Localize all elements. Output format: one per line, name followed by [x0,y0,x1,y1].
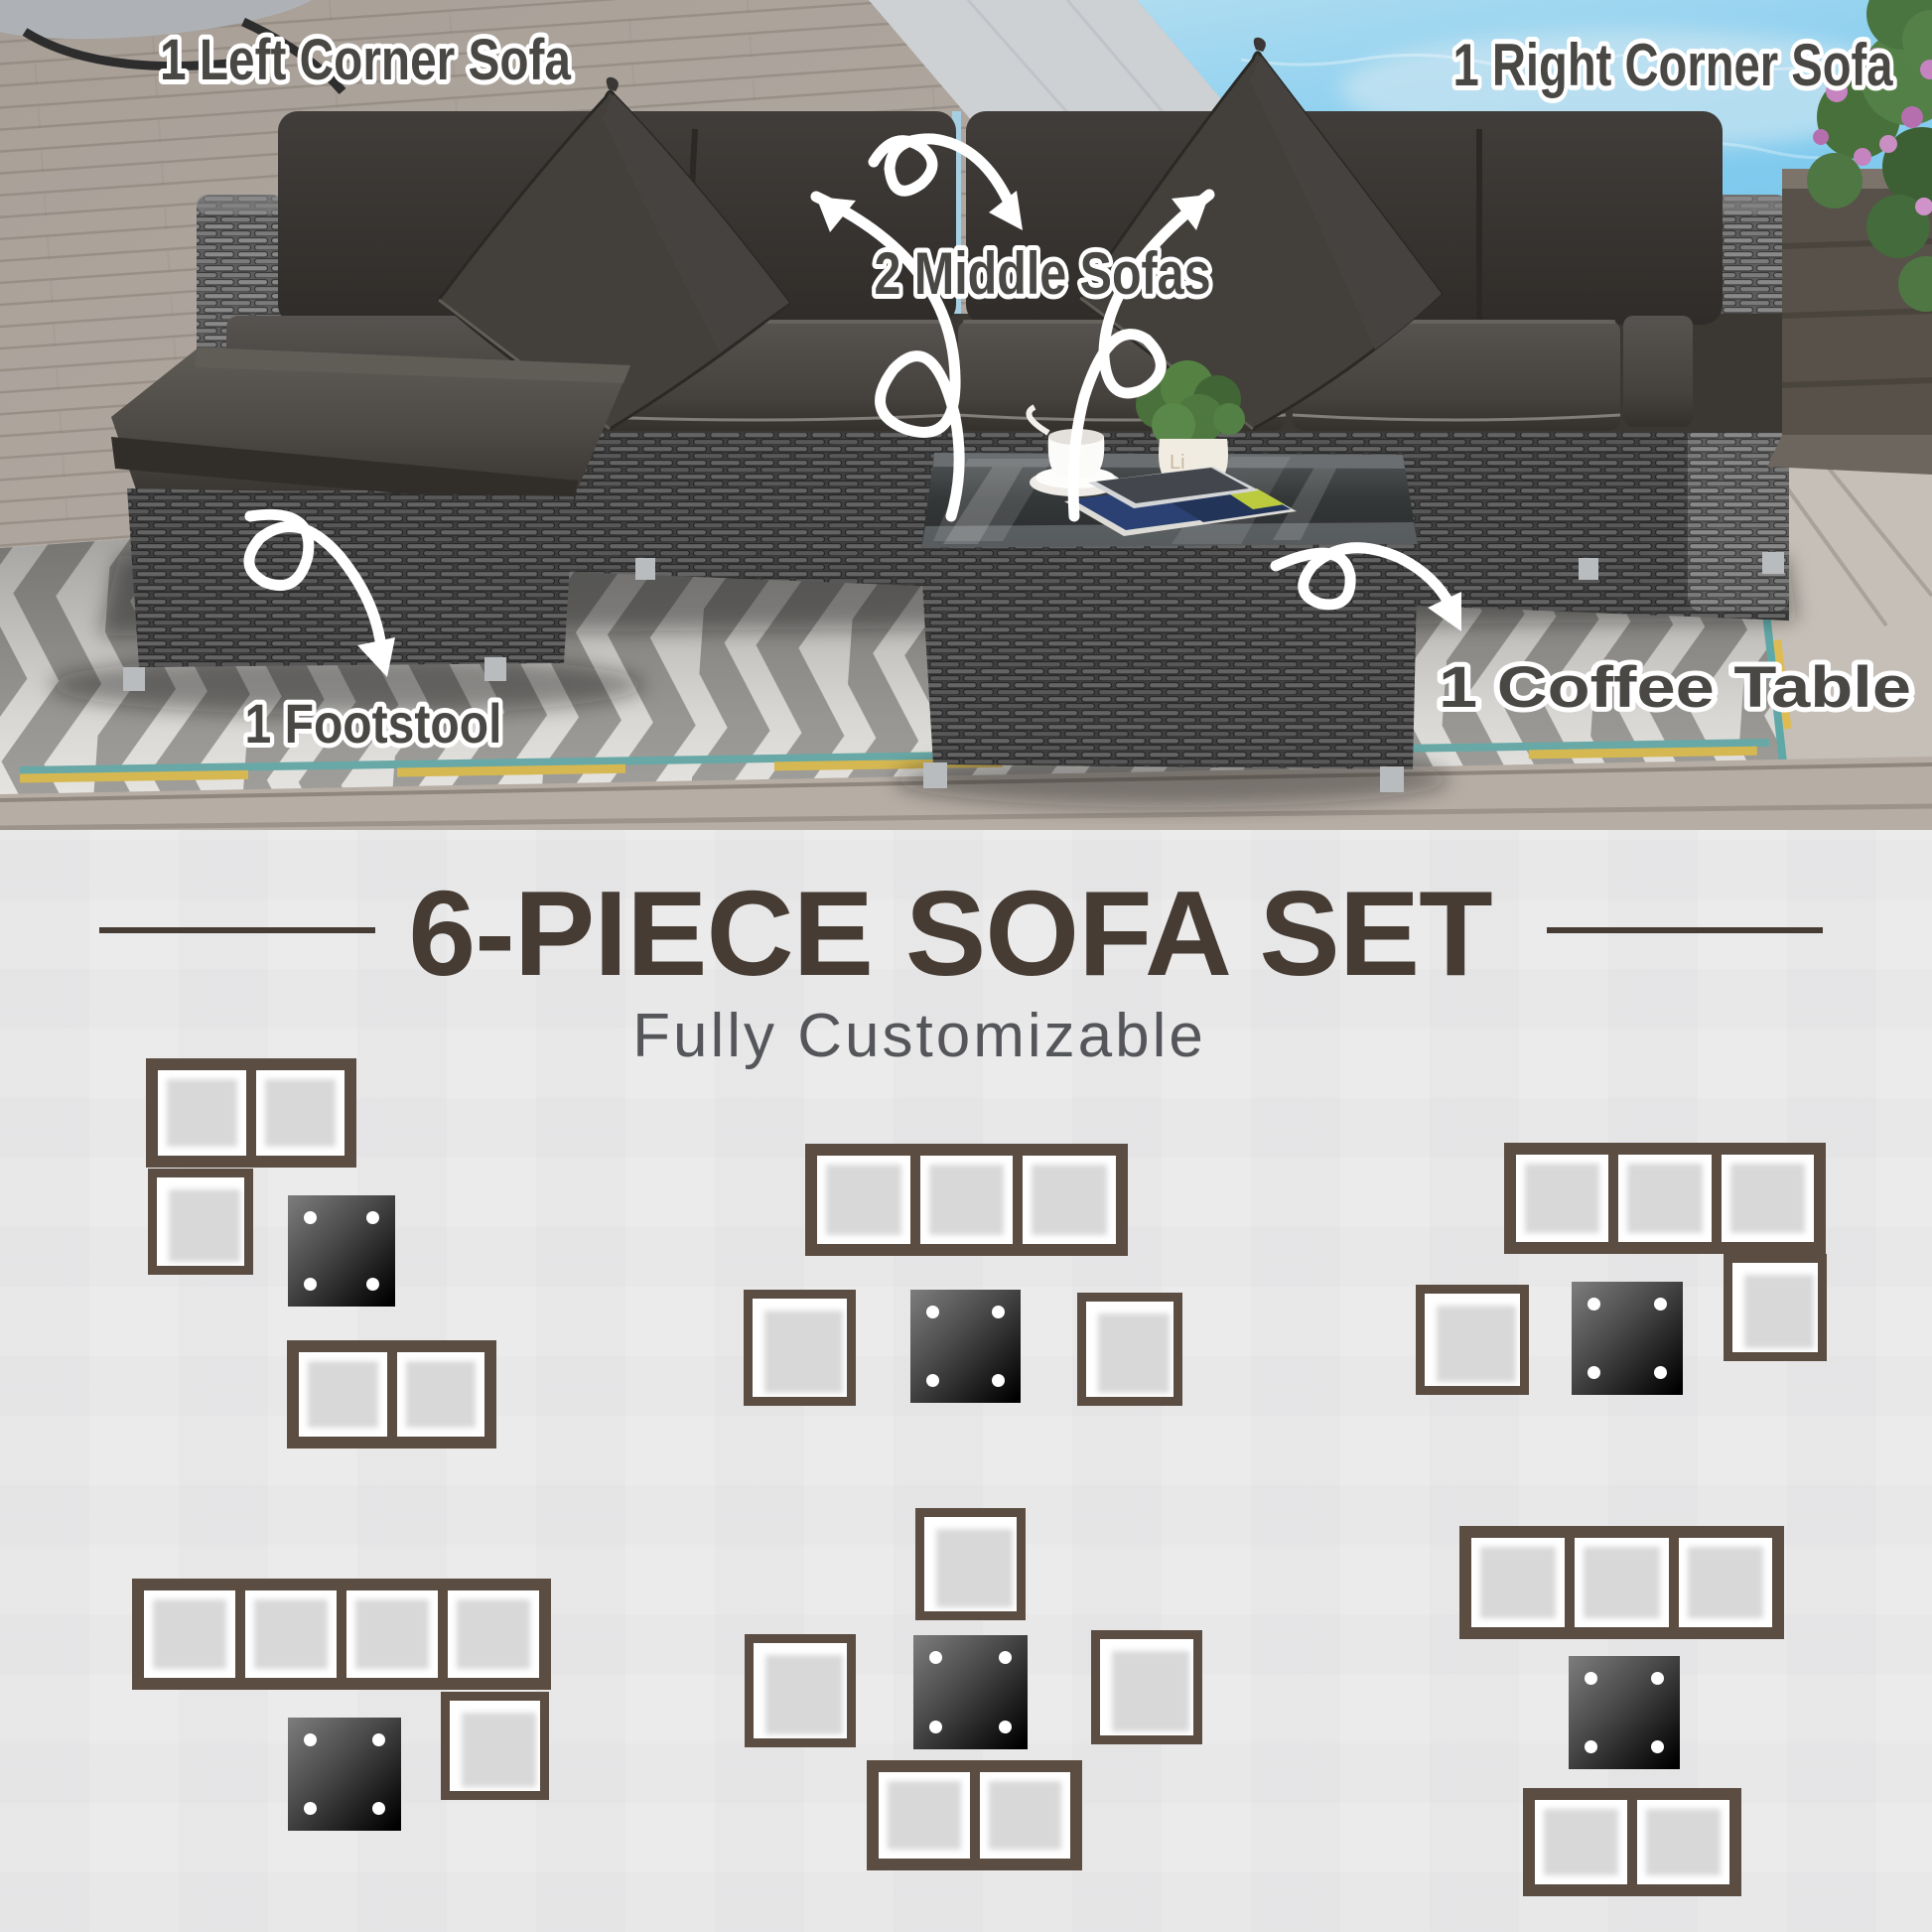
svg-text:1 Coffee Table: 1 Coffee Table [1439,655,1911,720]
svg-text:1 Footstool: 1 Footstool [245,692,502,755]
svg-text:1 Left Corner Sofa: 1 Left Corner Sofa [160,28,572,92]
svg-text:1 Right Corner Sofa: 1 Right Corner Sofa [1453,32,1893,98]
svg-text:Li: Li [1170,452,1185,474]
svg-text:2 Middle Sofas: 2 Middle Sofas [875,240,1211,307]
